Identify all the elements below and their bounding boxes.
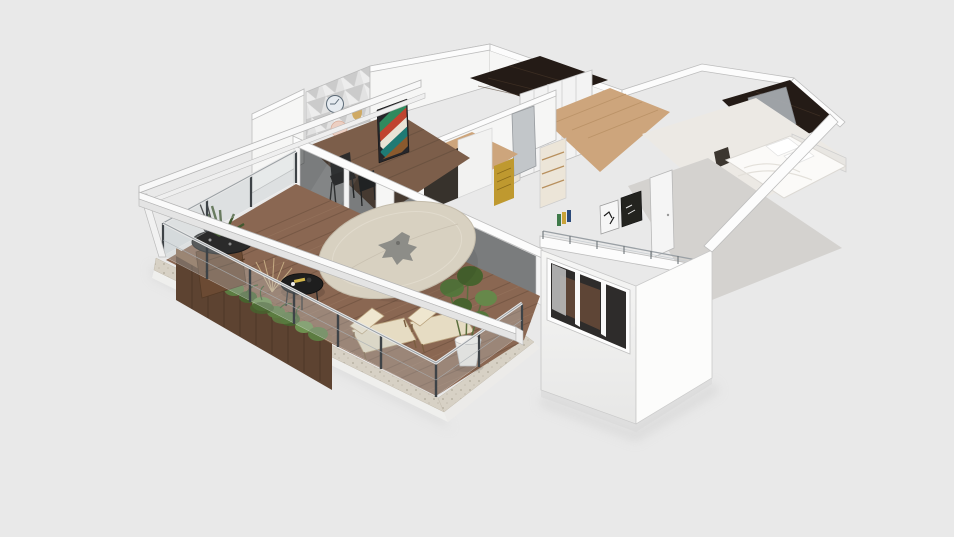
fridge [458,128,492,198]
floor-plan-3d-view[interactable] [0,0,954,537]
render-viewport [0,0,954,537]
interior-door [650,170,674,258]
door-knob [667,214,669,216]
book-spines [557,214,561,226]
curtain [552,264,566,316]
interior-door-gray [512,106,536,176]
wall-art [621,191,642,227]
wall-art [600,200,619,234]
